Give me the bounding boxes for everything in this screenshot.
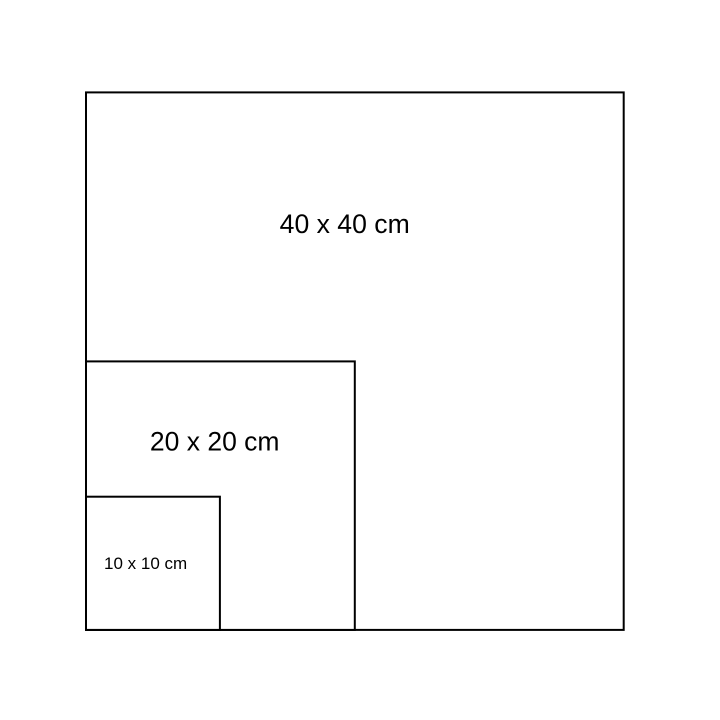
svg-text:40 x 40 cm: 40 x 40 cm xyxy=(280,209,410,239)
svg-text:20 x 20 cm: 20 x 20 cm xyxy=(150,427,280,457)
svg-text:10 x 10 cm: 10 x 10 cm xyxy=(104,554,187,573)
